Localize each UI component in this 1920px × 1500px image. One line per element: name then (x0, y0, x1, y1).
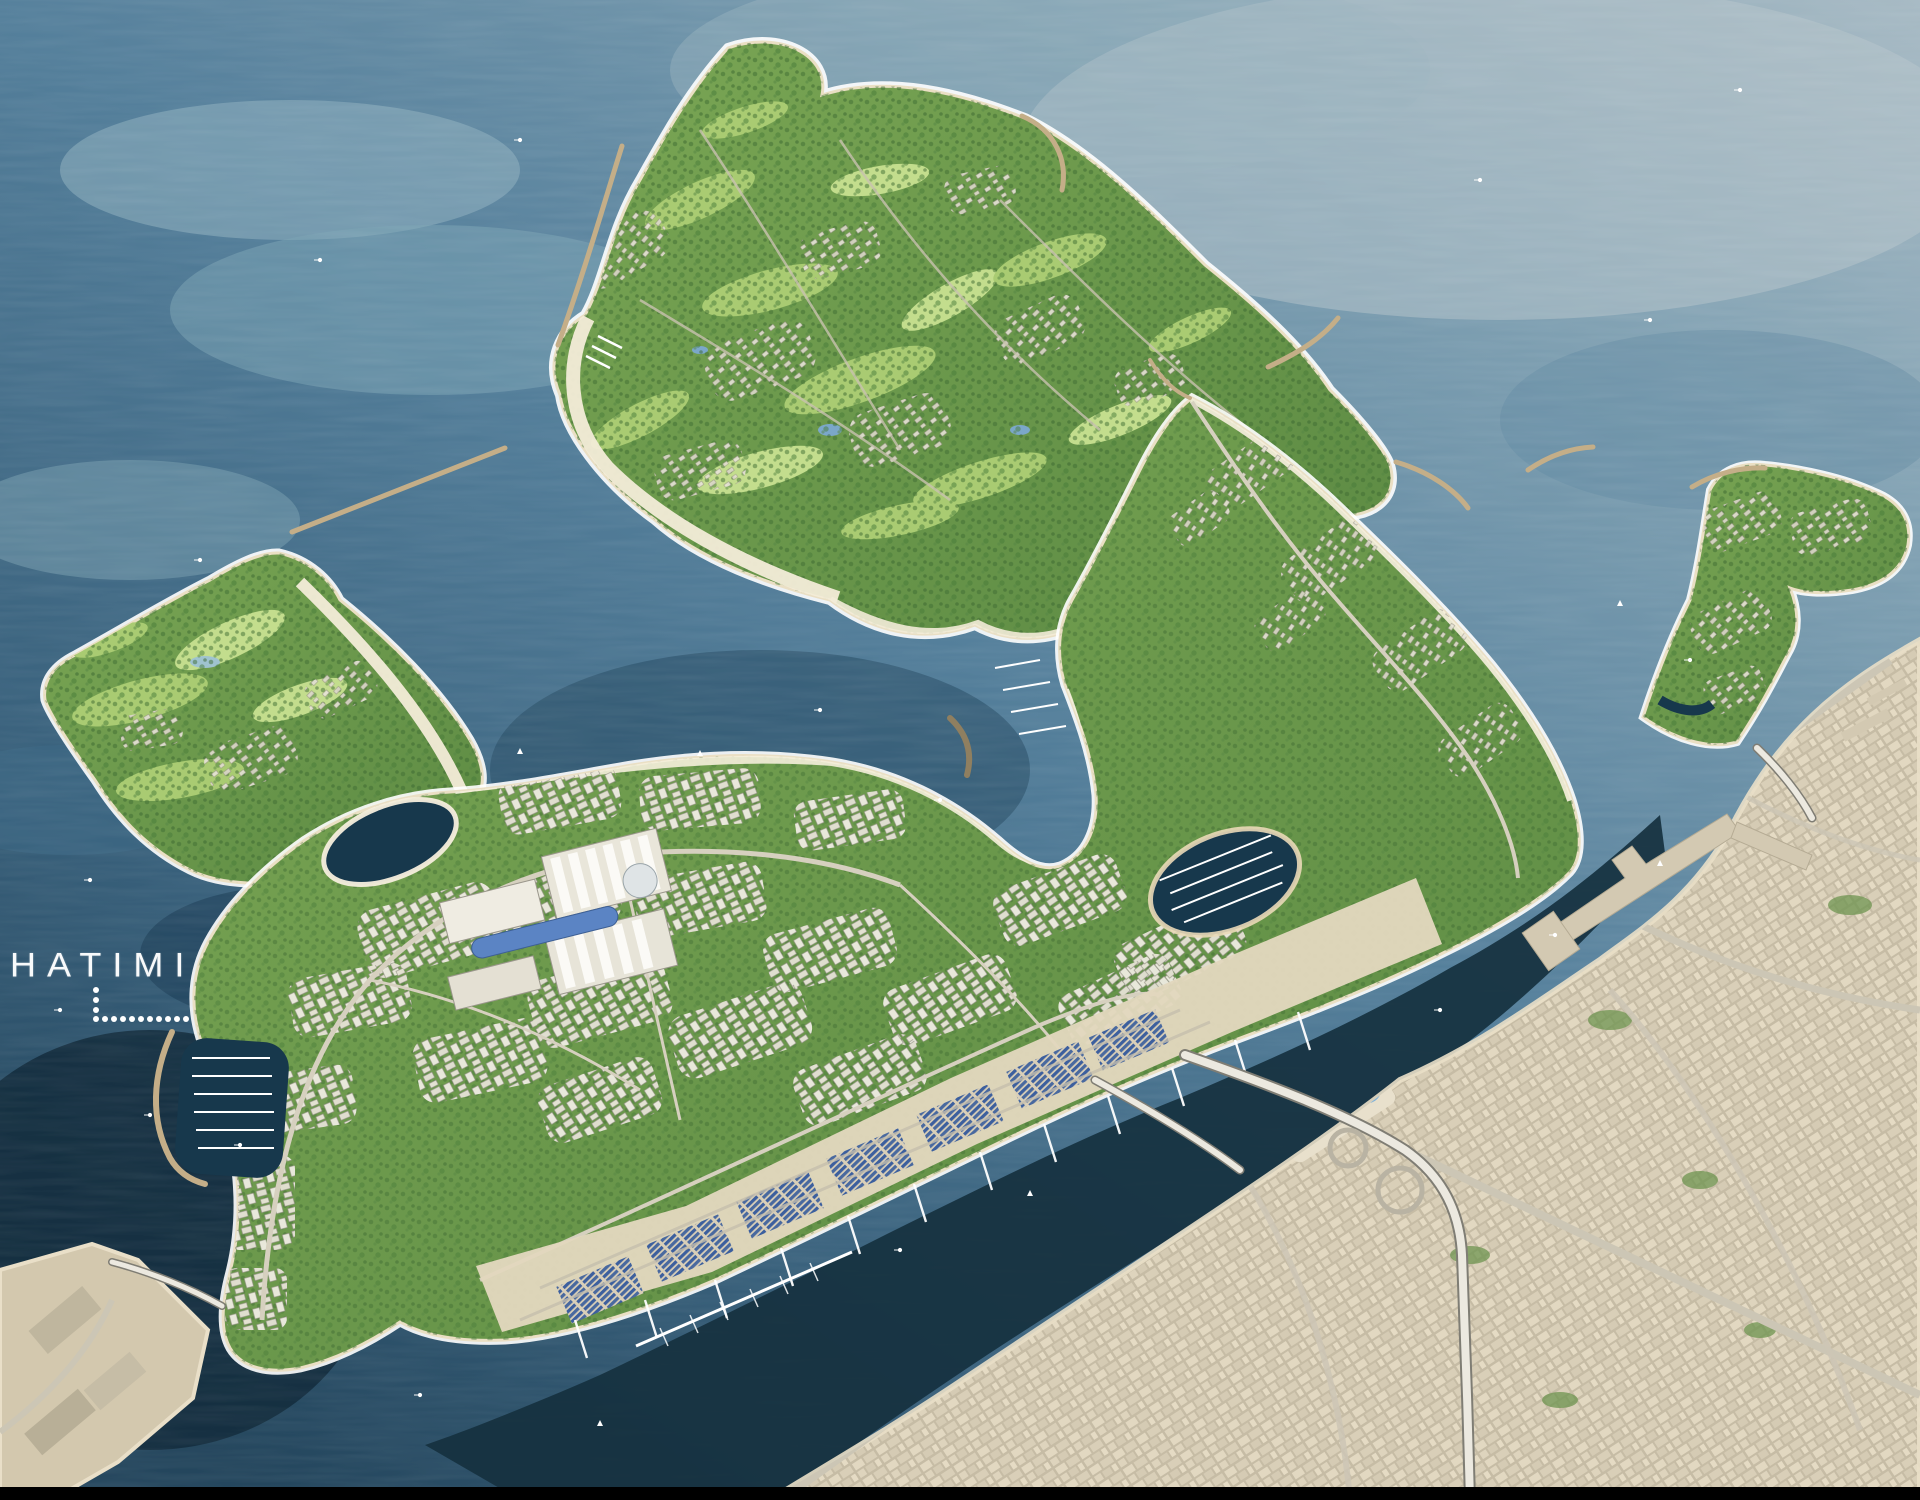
watermark-text: HATIMI (10, 945, 195, 985)
aerial-render: HATIMI (0, 0, 1920, 1500)
aerial-scene (0, 0, 1920, 1500)
bottom-black-bar (0, 1487, 1920, 1500)
watermark-dots (0, 982, 220, 1042)
